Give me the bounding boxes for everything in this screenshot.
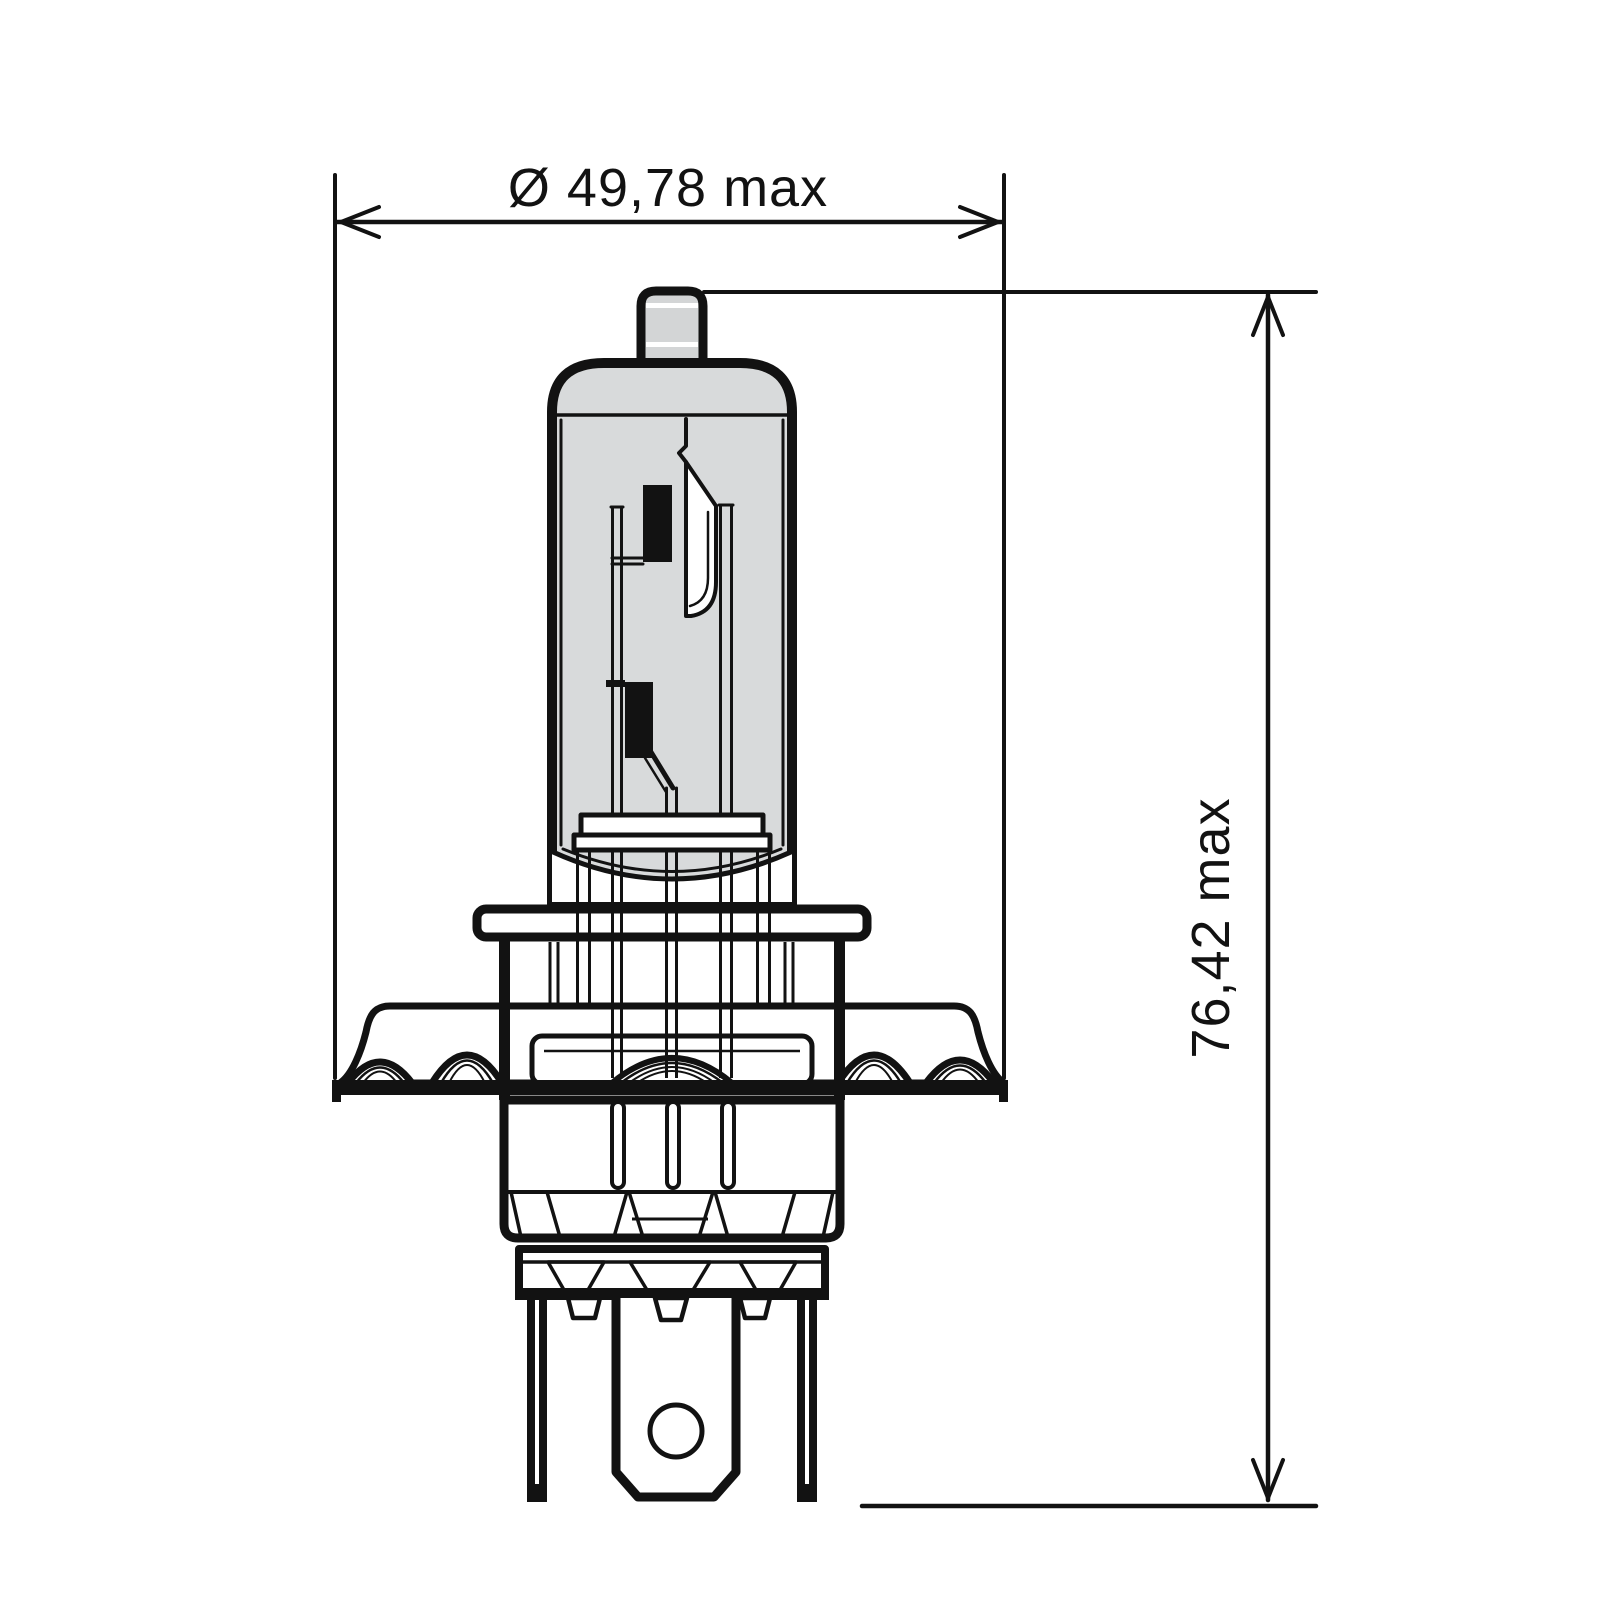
- height-dimension-label: 76,42 max: [1181, 797, 1241, 1058]
- dimension-lines: [335, 175, 1316, 1506]
- glass-tip-highlight: [646, 342, 698, 347]
- terminal-blade-left-highlight: [535, 1300, 539, 1484]
- filament-high-beam: [643, 485, 672, 562]
- bulb-base-block: [504, 1100, 840, 1238]
- filament-low-beam: [625, 682, 653, 758]
- terminal-tab: [568, 1298, 600, 1318]
- neck-wall-left: [499, 938, 510, 1100]
- bulb-collar: [477, 909, 867, 937]
- terminal-blade-right-highlight: [805, 1300, 809, 1484]
- stem-bridge-upper: [581, 815, 763, 835]
- diameter-dimension-label: Ø 49,78 max: [508, 158, 828, 218]
- stem-bridge-lower: [574, 835, 770, 850]
- terminal-tab: [740, 1298, 770, 1318]
- terminal-blade-center: [616, 1298, 736, 1497]
- flange-rim: [332, 1080, 1008, 1095]
- flange-rim-end-right: [999, 1080, 1008, 1102]
- base-pin-slot: [667, 1102, 679, 1188]
- technical-drawing: Ø 49,78 max 76,42 max: [0, 0, 1600, 1600]
- bulb-base-lower: [515, 1249, 829, 1300]
- flange-rim-end-left: [332, 1080, 341, 1102]
- neck-wall-right: [834, 938, 845, 1100]
- bulb-glass-envelope: [552, 291, 792, 907]
- terminal-blade-hole: [650, 1405, 702, 1457]
- glass-tip-highlight: [646, 303, 698, 308]
- bulb-terminals: [527, 1296, 817, 1502]
- base-pin-slot: [722, 1102, 734, 1188]
- glass-wall-trace-left: [550, 942, 558, 1004]
- bulb-flange: [332, 1006, 1008, 1102]
- drawing-canvas: Ø 49,78 max 76,42 max: [0, 0, 1600, 1600]
- terminal-tab: [655, 1298, 687, 1320]
- base-pin-slot: [612, 1102, 624, 1188]
- filament-low-beam-lead: [606, 680, 625, 687]
- glass-wall-trace-right: [785, 942, 793, 1004]
